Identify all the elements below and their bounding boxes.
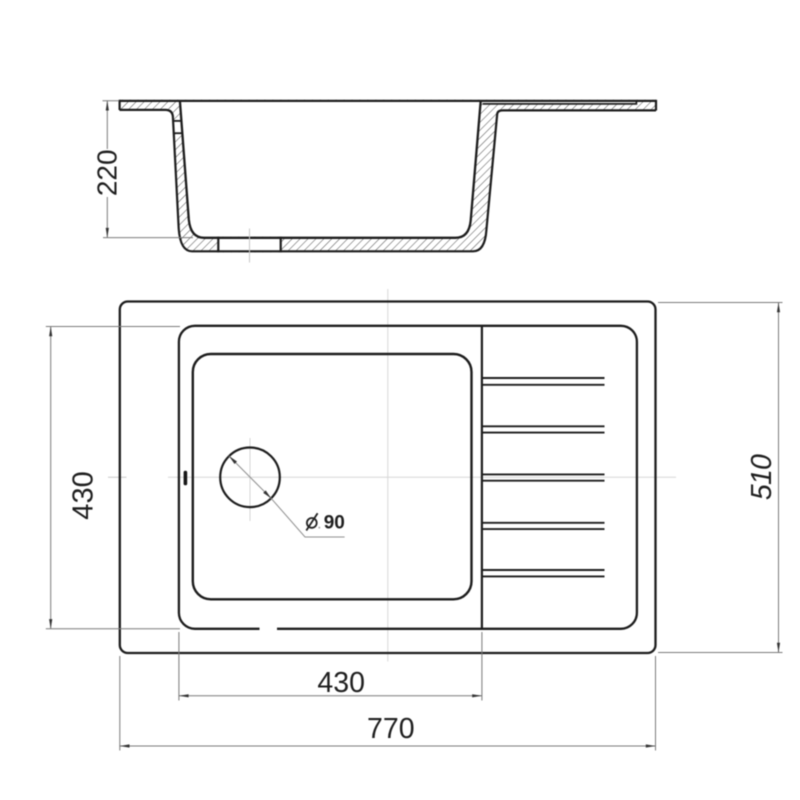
svg-text:90: 90 — [324, 513, 345, 534]
svg-text:220: 220 — [92, 149, 123, 196]
svg-text:510: 510 — [746, 454, 778, 500]
svg-text:430: 430 — [67, 471, 99, 519]
svg-text:430: 430 — [317, 667, 365, 699]
svg-text:770: 770 — [367, 713, 415, 745]
